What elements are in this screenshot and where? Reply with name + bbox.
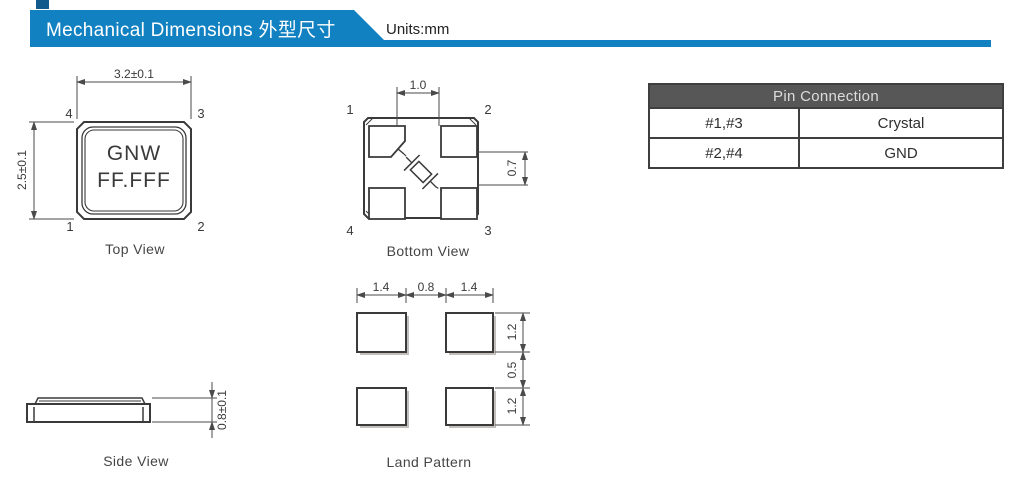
side-view-caption: Side View (103, 453, 169, 469)
top-view-caption: Top View (105, 241, 165, 257)
land-pad-top-left (357, 313, 406, 352)
pin-connection-table: Pin Connection #1,#3 Crystal #2,#4 GND (648, 83, 1004, 169)
side-view-body (27, 404, 150, 422)
land-pad-bottom-right (446, 388, 493, 425)
bottom-view-gap-vertical-value: 0.7 (505, 159, 519, 176)
bottom-view-caption: Bottom View (387, 243, 470, 259)
land-dim-center-gap: 0.8 (418, 280, 435, 294)
land-dim-top-height: 1.2 (505, 323, 519, 340)
bottom-view-gap-horizontal-value: 1.0 (410, 78, 427, 92)
land-pads (357, 313, 493, 425)
bottom-view-drawing: 1 2 4 3 1.0 0.7 Bottom View (320, 62, 550, 267)
land-dim-right-width: 1.4 (461, 280, 478, 294)
top-view-pin-3: 3 (197, 106, 204, 121)
bottom-view-pad-3 (441, 188, 477, 219)
land-dim-bottom-height: 1.2 (505, 397, 519, 414)
top-view-drawing: GNW FF.FFF 4 3 1 2 3.2±0.1 2.5±0.1 Top V… (12, 62, 262, 267)
land-pad-top-right (446, 313, 493, 352)
top-view-pin-2: 2 (197, 219, 204, 234)
pin-table-row-gnd: #2,#4 GND (649, 138, 1003, 168)
bottom-view-pad-4 (369, 188, 405, 219)
land-pattern-drawing: 1.4 0.8 1.4 1.2 0.5 1.2 Land Pattern (330, 277, 550, 477)
top-view-height-dimension (29, 122, 74, 219)
pin-table-pins-2: #2,#4 (649, 138, 799, 168)
pin-table-conn-2: GND (799, 138, 1003, 168)
land-dim-vertical-gap: 0.5 (505, 361, 519, 378)
bottom-view-pin-2: 2 (484, 102, 491, 117)
units-label: Units:mm (386, 21, 449, 38)
section-title: Mechanical Dimensions 外型尺寸 (46, 15, 336, 42)
side-view-height-value: 0.8±0.1 (215, 390, 229, 430)
bottom-view-pin-1: 1 (346, 102, 353, 117)
land-pad-bottom-left (357, 388, 406, 425)
side-view-drawing: 0.8±0.1 Side View (10, 378, 260, 478)
banner-corner-notch (36, 0, 49, 9)
pin-table-row-crystal: #1,#3 Crystal (649, 108, 1003, 138)
banner-underline (30, 40, 991, 47)
top-view-width-dimension (77, 76, 191, 119)
land-dim-left-width: 1.4 (373, 280, 390, 294)
top-view-width-value: 3.2±0.1 (114, 67, 154, 81)
bottom-view-gap-dimension-vertical (478, 152, 528, 185)
pin-table-pins-1: #1,#3 (649, 108, 799, 138)
bottom-view-pad-2 (441, 126, 477, 157)
pin-table-title: Pin Connection (649, 84, 1003, 108)
bottom-view-pin-4: 4 (346, 223, 353, 238)
pin-table-conn-1: Crystal (799, 108, 1003, 138)
part-marking-line1: GNW (107, 142, 161, 165)
top-view-pin-4: 4 (65, 106, 72, 121)
datasheet-page: Mechanical Dimensions 外型尺寸 Units:mm GNW … (0, 0, 1018, 499)
top-view-height-value: 2.5±0.1 (15, 150, 29, 190)
side-view-height-dimension (152, 382, 217, 438)
part-marking-line2: FF.FFF (97, 169, 171, 192)
top-view-pin-1: 1 (66, 219, 73, 234)
land-pattern-caption: Land Pattern (387, 454, 472, 470)
bottom-view-pin-3: 3 (484, 223, 491, 238)
